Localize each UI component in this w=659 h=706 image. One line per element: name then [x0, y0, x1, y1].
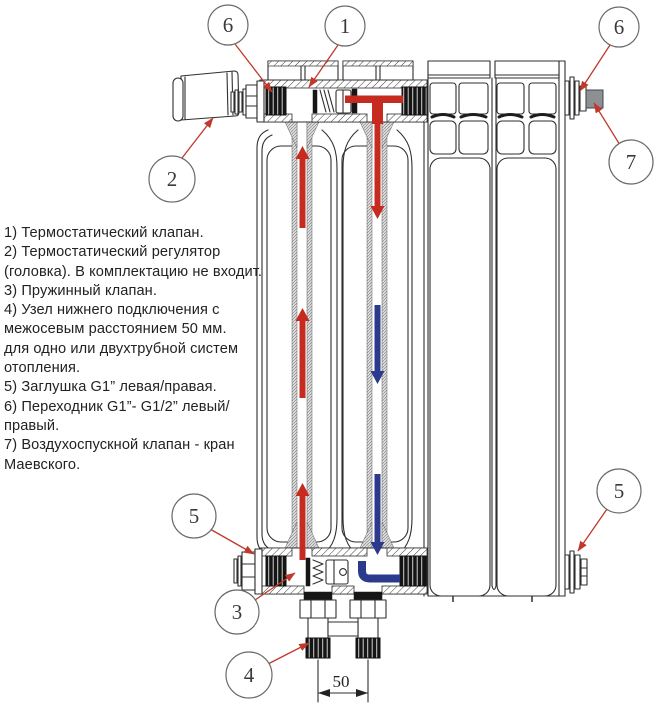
- radiator-cutaway-sections: [257, 130, 412, 556]
- svg-text:5: 5: [614, 479, 625, 503]
- bottom-right-plug: [565, 551, 587, 593]
- adapter-thread-right-top: [402, 87, 427, 115]
- bottom-left-plug: [234, 549, 262, 594]
- radiator-drawing: 50 6 1 2 6: [0, 0, 659, 706]
- callout-4: 4: [226, 643, 309, 698]
- dimension-50mm: 50: [318, 660, 368, 702]
- svg-text:6: 6: [223, 13, 234, 37]
- adapter-thread-left-top: [266, 87, 286, 115]
- svg-text:2: 2: [167, 167, 178, 191]
- radiator-exterior-sections: [424, 61, 565, 602]
- air-vent-valve: [586, 90, 603, 108]
- air-vent-assembly: [565, 77, 603, 119]
- radiator-diagram: 1) Термостатический клапан. 2) Термостат…: [0, 0, 659, 706]
- callout-7: 7: [594, 103, 653, 184]
- thermostatic-head: [173, 71, 264, 122]
- svg-text:5: 5: [189, 504, 200, 528]
- bottom-header: [260, 548, 427, 594]
- svg-text:7: 7: [626, 150, 637, 174]
- callout-5-bottom-right: 5: [578, 469, 641, 551]
- adapter-thread-right-bottom: [400, 556, 426, 586]
- dimension-label: 50: [333, 672, 350, 691]
- svg-text:3: 3: [232, 600, 243, 624]
- svg-text:4: 4: [244, 663, 255, 687]
- callout-6-top-right: 6: [580, 7, 639, 91]
- top-left-fitting: [231, 90, 238, 114]
- radiator-right-end-plate: [559, 61, 565, 596]
- top-header: [260, 61, 427, 124]
- svg-text:6: 6: [614, 15, 625, 39]
- svg-text:1: 1: [340, 14, 351, 38]
- callout-5-bottom-left: 5: [172, 494, 254, 554]
- bottom-connection-unit: [300, 592, 386, 658]
- callout-2: 2: [149, 118, 213, 202]
